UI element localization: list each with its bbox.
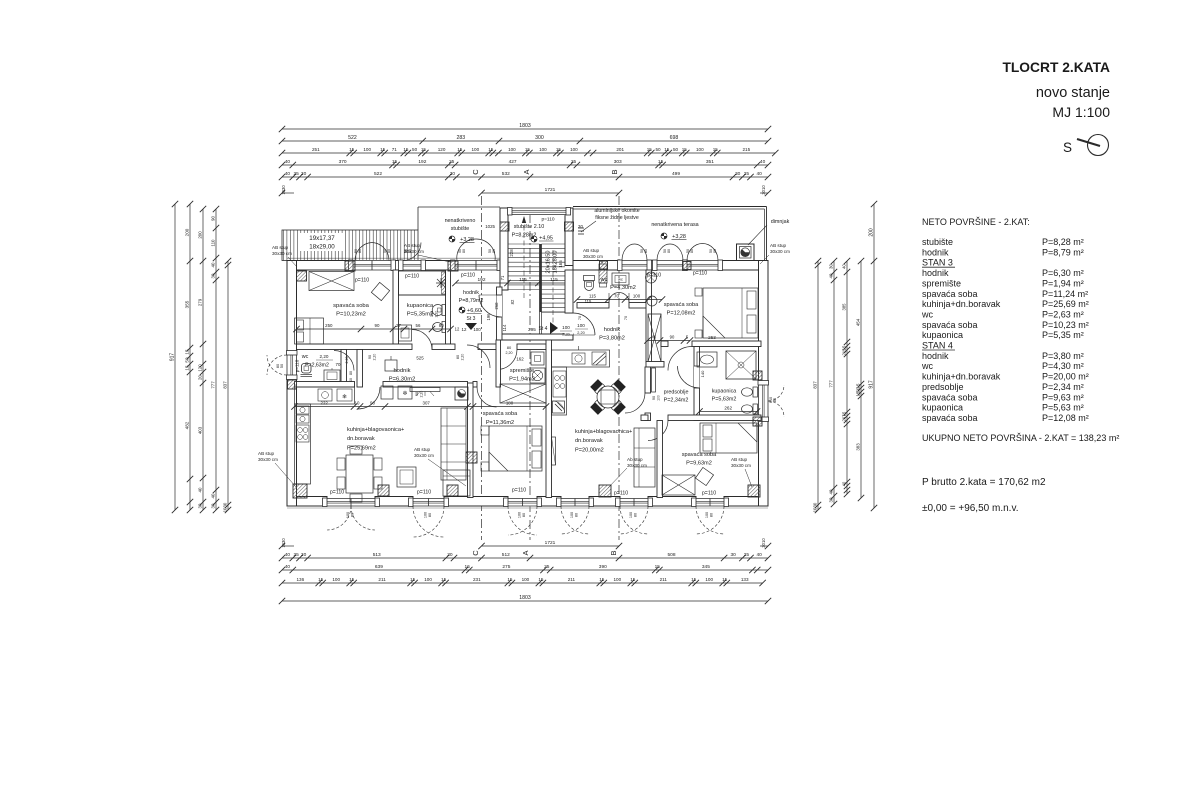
svg-text:115: 115 <box>519 277 527 283</box>
svg-text:p=110: p=110 <box>693 271 707 277</box>
svg-text:698: 698 <box>670 135 679 141</box>
svg-text:16: 16 <box>465 564 471 570</box>
svg-text:499: 499 <box>672 171 680 177</box>
svg-text:19x17,37: 19x17,37 <box>309 235 335 242</box>
svg-text:70: 70 <box>624 316 628 320</box>
svg-text:200: 200 <box>185 228 190 236</box>
svg-text:80: 80 <box>773 398 777 402</box>
svg-text:30x30 cm: 30x30 cm <box>583 254 603 259</box>
svg-text:15: 15 <box>664 147 670 152</box>
svg-text:p=110: p=110 <box>702 491 716 497</box>
svg-text:275: 275 <box>502 564 510 570</box>
svg-text:wc: wc <box>921 310 933 320</box>
svg-text:hodnik: hodnik <box>922 247 949 257</box>
svg-text:P brutto 2.kata = 170,62 m2: P brutto 2.kata = 170,62 m2 <box>922 477 1046 488</box>
svg-text:192: 192 <box>477 277 485 283</box>
svg-text:nenatkriveno: nenatkriveno <box>445 218 476 224</box>
svg-text:stubište 2.10: stubište 2.10 <box>514 224 545 230</box>
svg-text:P=9,63m2: P=9,63m2 <box>686 461 712 467</box>
svg-text:15: 15 <box>185 365 190 371</box>
svg-text:15: 15 <box>525 147 531 152</box>
svg-text:25: 25 <box>744 171 750 177</box>
svg-text:403: 403 <box>198 426 203 434</box>
svg-text:p=110: p=110 <box>614 491 628 497</box>
svg-text:115: 115 <box>585 299 592 304</box>
svg-text:522: 522 <box>348 135 357 141</box>
svg-text:70: 70 <box>336 362 341 367</box>
svg-text:283: 283 <box>456 135 465 141</box>
svg-text:80: 80 <box>428 513 432 517</box>
svg-text:dn.boravak: dn.boravak <box>347 436 375 442</box>
svg-text:512: 512 <box>502 552 510 558</box>
svg-text:15: 15 <box>713 147 719 152</box>
svg-text:kupaonica: kupaonica <box>922 403 963 413</box>
svg-text:15: 15 <box>349 577 355 582</box>
svg-text:P=1,94 m²: P=1,94 m² <box>1042 278 1084 288</box>
svg-text:p=110: p=110 <box>512 488 526 494</box>
svg-text:1030: 1030 <box>813 502 818 512</box>
svg-text:AB stup: AB stup <box>414 447 431 452</box>
svg-text:71: 71 <box>500 275 505 280</box>
svg-text:P=8,28 m²: P=8,28 m² <box>1042 237 1084 247</box>
svg-text:80: 80 <box>575 513 579 517</box>
svg-text:385: 385 <box>842 303 847 311</box>
svg-text:100: 100 <box>522 577 530 582</box>
svg-text:hodnik: hodnik <box>922 351 949 361</box>
svg-text:dn.boravak: dn.boravak <box>575 438 603 444</box>
svg-text:P=4,30m2: P=4,30m2 <box>610 285 636 291</box>
svg-text:12: 12 <box>455 327 460 332</box>
svg-text:B: B <box>610 169 619 174</box>
svg-text:100: 100 <box>473 327 481 332</box>
svg-text:P=8,79 m²: P=8,79 m² <box>1042 247 1084 257</box>
svg-text:50: 50 <box>673 147 679 152</box>
svg-text:P=20,00m2: P=20,00m2 <box>575 448 604 454</box>
svg-text:kupaonica: kupaonica <box>712 389 737 395</box>
svg-text:777: 777 <box>211 381 216 389</box>
svg-text:532: 532 <box>502 171 510 177</box>
svg-text:spremište: spremište <box>922 278 961 288</box>
svg-text:100: 100 <box>424 577 432 582</box>
svg-text:15: 15 <box>856 391 861 396</box>
svg-text:30: 30 <box>450 171 456 177</box>
svg-text:hodnik: hodnik <box>604 327 621 333</box>
svg-text:p=110: p=110 <box>330 490 344 496</box>
svg-text:kuhinja+blagovaonica+: kuhinja+blagovaonica+ <box>575 429 632 435</box>
svg-text:133: 133 <box>741 577 749 582</box>
svg-text:345: 345 <box>702 564 710 570</box>
svg-text:80: 80 <box>690 249 694 253</box>
svg-text:15: 15 <box>441 577 447 582</box>
svg-text:40: 40 <box>285 552 291 558</box>
svg-text:917: 917 <box>170 353 176 362</box>
svg-text:120: 120 <box>198 364 203 372</box>
svg-text:spremište: spremište <box>510 368 534 374</box>
svg-text:110: 110 <box>211 239 216 247</box>
svg-text:18x29,00: 18x29,00 <box>309 244 335 251</box>
svg-text:508: 508 <box>667 552 675 558</box>
svg-text:2,20: 2,20 <box>461 354 465 361</box>
svg-text:917: 917 <box>869 380 875 389</box>
svg-text:251: 251 <box>312 147 320 152</box>
svg-text:2,20: 2,20 <box>577 331 584 335</box>
svg-text:3010: 3010 <box>761 185 766 195</box>
svg-text:40: 40 <box>829 273 834 278</box>
svg-text:46: 46 <box>651 335 656 340</box>
svg-text:100: 100 <box>539 147 547 152</box>
svg-text:P=5,63 m²: P=5,63 m² <box>1042 403 1084 413</box>
svg-text:100: 100 <box>705 512 709 518</box>
svg-text:482: 482 <box>185 421 190 429</box>
svg-text:140: 140 <box>700 370 705 377</box>
svg-text:1803: 1803 <box>519 123 531 129</box>
svg-text:15: 15 <box>457 147 463 152</box>
svg-text:30: 30 <box>198 503 203 508</box>
svg-text:100: 100 <box>363 147 371 152</box>
svg-text:50: 50 <box>280 364 284 368</box>
svg-text:82: 82 <box>510 299 515 304</box>
svg-text:639: 639 <box>375 564 383 570</box>
svg-text:1721: 1721 <box>545 187 556 193</box>
svg-text:P=11,24 m²: P=11,24 m² <box>1042 289 1088 299</box>
svg-text:25: 25 <box>544 564 550 570</box>
svg-text:p=110: p=110 <box>295 359 300 372</box>
svg-text:115: 115 <box>550 277 558 283</box>
svg-text:P=3,80 m²: P=3,80 m² <box>1042 351 1084 361</box>
svg-text:C: C <box>471 550 480 556</box>
svg-text:p=110: p=110 <box>355 278 369 284</box>
svg-text:novo stanje: novo stanje <box>1036 85 1110 101</box>
svg-text:25: 25 <box>571 159 577 165</box>
svg-text:+3,28: +3,28 <box>672 234 686 240</box>
svg-text:40: 40 <box>757 552 763 558</box>
svg-text:165: 165 <box>558 260 563 268</box>
svg-text:NETO POVRŠINE - 2.KAT:: NETO POVRŠINE - 2.KAT: <box>922 217 1030 227</box>
svg-text:268: 268 <box>494 302 499 310</box>
svg-text:100: 100 <box>633 294 641 299</box>
svg-text:P=12,08m2: P=12,08m2 <box>667 311 696 317</box>
svg-text:15: 15 <box>318 577 324 582</box>
svg-text:predsoblje: predsoblje <box>922 382 964 392</box>
svg-text:kuhinja+dn.boravak: kuhinja+dn.boravak <box>922 299 1001 309</box>
svg-text:p=110: p=110 <box>541 217 554 223</box>
svg-text:200: 200 <box>869 228 875 237</box>
svg-text:spavaća soba: spavaća soba <box>922 289 978 299</box>
svg-text:30: 30 <box>211 503 216 508</box>
svg-text:P=25,69m2: P=25,69m2 <box>347 446 376 452</box>
svg-text:B: B <box>609 550 618 555</box>
svg-text:100: 100 <box>424 512 428 518</box>
svg-text:90: 90 <box>415 392 419 396</box>
svg-text:15: 15 <box>599 577 605 582</box>
svg-text:dimnjak: dimnjak <box>771 219 790 225</box>
svg-text:1030: 1030 <box>223 502 228 512</box>
svg-text:80: 80 <box>644 249 648 253</box>
svg-text:15: 15 <box>392 159 398 165</box>
svg-text:wc: wc <box>921 361 933 371</box>
svg-text:80: 80 <box>351 513 355 517</box>
svg-text:201: 201 <box>616 147 624 152</box>
svg-text:+6,60: +6,60 <box>467 308 481 314</box>
svg-text:267: 267 <box>842 414 847 422</box>
svg-text:40: 40 <box>211 493 216 498</box>
svg-text:±0,00 = +96,50 m.n.v.: ±0,00 = +96,50 m.n.v. <box>922 503 1018 514</box>
svg-text:P=4,30 m²: P=4,30 m² <box>1042 361 1084 371</box>
svg-text:15: 15 <box>403 147 409 152</box>
svg-text:spavaća soba: spavaća soba <box>333 303 370 309</box>
svg-text:❄: ❄ <box>402 390 407 397</box>
svg-text:71: 71 <box>392 147 398 152</box>
svg-text:30: 30 <box>829 264 834 269</box>
svg-text:15: 15 <box>507 577 513 582</box>
svg-text:100: 100 <box>629 512 633 518</box>
svg-text:spavaća soba: spavaća soba <box>483 411 518 417</box>
svg-text:351: 351 <box>706 159 714 165</box>
svg-text:100: 100 <box>705 577 713 582</box>
svg-text:fiksne židne ljestve: fiksne židne ljestve <box>595 215 639 221</box>
svg-text:70: 70 <box>578 316 582 320</box>
svg-text:222: 222 <box>321 401 329 406</box>
svg-text:80: 80 <box>276 364 280 368</box>
svg-text:837: 837 <box>813 381 818 389</box>
svg-text:TLOCRT 2.KATA: TLOCRT 2.KATA <box>1002 60 1110 75</box>
svg-text:200: 200 <box>198 231 203 239</box>
svg-text:25: 25 <box>294 171 300 177</box>
svg-text:295: 295 <box>528 327 536 332</box>
svg-text:100: 100 <box>570 512 574 518</box>
svg-text:nenatkrivena terasa: nenatkrivena terasa <box>651 222 698 228</box>
svg-text:231: 231 <box>473 577 481 582</box>
svg-text:P=5,35 m²: P=5,35 m² <box>1042 330 1084 340</box>
svg-text:kuhinja+blagovaonica+: kuhinja+blagovaonica+ <box>347 427 404 433</box>
svg-text:427: 427 <box>509 159 517 165</box>
svg-text:P=1,94m2: P=1,94m2 <box>509 377 535 383</box>
svg-text:15: 15 <box>349 147 355 152</box>
svg-text:St 3: St 3 <box>467 316 476 322</box>
svg-text:80: 80 <box>408 249 412 253</box>
svg-text:30: 30 <box>301 552 307 558</box>
svg-text:p=110: p=110 <box>461 273 475 279</box>
svg-text:30x30 cm: 30x30 cm <box>272 251 292 256</box>
svg-text:80: 80 <box>387 249 391 253</box>
svg-text:2,20: 2,20 <box>373 354 377 361</box>
svg-text:40: 40 <box>829 489 834 494</box>
svg-text:C: C <box>471 169 480 175</box>
svg-text:80: 80 <box>710 513 714 517</box>
svg-text:P=9,63 m²: P=9,63 m² <box>1042 392 1084 402</box>
svg-text:20: 20 <box>198 375 203 380</box>
svg-text:15: 15 <box>380 147 386 152</box>
svg-text:100: 100 <box>518 512 522 518</box>
svg-text:P=6,30 m²: P=6,30 m² <box>1042 268 1084 278</box>
svg-text:100: 100 <box>613 577 621 582</box>
svg-text:P=3,80m2: P=3,80m2 <box>599 336 625 342</box>
svg-text:15: 15 <box>655 564 661 570</box>
svg-text:wc: wc <box>600 277 608 283</box>
svg-text:30: 30 <box>829 497 834 502</box>
svg-text:MJ 1:100: MJ 1:100 <box>1052 104 1110 120</box>
svg-text:spavaća soba: spavaća soba <box>922 320 978 330</box>
svg-text:25: 25 <box>744 552 750 558</box>
svg-text:S: S <box>1063 140 1072 155</box>
svg-text:kupaonica: kupaonica <box>407 303 434 309</box>
svg-text:+4,95: +4,95 <box>539 236 553 242</box>
svg-text:2,20: 2,20 <box>345 357 349 364</box>
svg-text:UKUPNO NETO POVRŠINA - 2.KAT =: UKUPNO NETO POVRŠINA - 2.KAT = 138,23 m² <box>922 433 1119 443</box>
svg-text:spavaća soba: spavaća soba <box>922 413 978 423</box>
svg-text:50: 50 <box>412 147 418 152</box>
svg-text:525: 525 <box>416 356 424 361</box>
svg-text:15: 15 <box>556 147 562 152</box>
svg-text:Ab stup: Ab stup <box>627 457 643 462</box>
svg-text:192: 192 <box>418 159 426 165</box>
svg-text:STAN 3: STAN 3 <box>922 258 953 268</box>
svg-text:10: 10 <box>355 401 360 406</box>
svg-text:30x30 cm: 30x30 cm <box>770 249 790 254</box>
svg-text:211: 211 <box>378 577 386 582</box>
svg-text:100: 100 <box>577 323 585 328</box>
svg-text:100: 100 <box>508 147 516 152</box>
svg-text:12: 12 <box>462 327 467 332</box>
svg-text:40: 40 <box>285 171 291 177</box>
svg-text:30: 30 <box>735 171 741 177</box>
svg-text:100: 100 <box>570 147 578 152</box>
svg-text:90: 90 <box>370 401 375 406</box>
svg-text:30: 30 <box>211 273 216 278</box>
svg-text:80: 80 <box>507 345 512 350</box>
svg-text:P=12,08 m²: P=12,08 m² <box>1042 413 1089 423</box>
svg-text:30x30 cm: 30x30 cm <box>731 463 751 468</box>
svg-text:80: 80 <box>713 249 717 253</box>
svg-text:15: 15 <box>691 577 697 582</box>
svg-text:90: 90 <box>375 323 380 328</box>
svg-text:15: 15 <box>488 147 494 152</box>
svg-text:100: 100 <box>332 577 340 582</box>
svg-text:30: 30 <box>301 171 307 177</box>
svg-text:80: 80 <box>349 371 353 375</box>
svg-text:AB stup: AB stup <box>258 451 275 456</box>
svg-text:spavaća soba: spavaća soba <box>664 302 699 308</box>
svg-text:AB stup: AB stup <box>404 243 421 248</box>
svg-text:90: 90 <box>368 355 372 359</box>
svg-text:P=11,36m2: P=11,36m2 <box>486 420 514 426</box>
svg-text:279: 279 <box>198 298 203 306</box>
svg-text:370: 370 <box>339 159 347 165</box>
svg-text:80: 80 <box>462 249 466 253</box>
svg-text:1721: 1721 <box>545 540 556 546</box>
svg-text:25: 25 <box>449 159 455 165</box>
svg-text:15: 15 <box>410 577 416 582</box>
svg-text:15: 15 <box>682 147 688 152</box>
svg-text:stubište: stubište <box>451 226 470 232</box>
svg-text:215: 215 <box>842 348 847 356</box>
svg-text:p=110: p=110 <box>417 490 431 496</box>
svg-text:hodnik: hodnik <box>463 290 479 296</box>
svg-text:1030: 1030 <box>281 185 286 195</box>
svg-text:114: 114 <box>502 324 507 331</box>
svg-text:100: 100 <box>562 325 570 330</box>
svg-text:spavaća soba: spavaća soba <box>922 392 978 402</box>
svg-text:307: 307 <box>423 401 431 406</box>
svg-text:P=2,34 m²: P=2,34 m² <box>1042 382 1084 392</box>
svg-text:56: 56 <box>416 323 421 328</box>
svg-text:40: 40 <box>760 159 766 165</box>
svg-text:15: 15 <box>658 159 664 165</box>
svg-text:1025: 1025 <box>485 224 495 229</box>
svg-text:215: 215 <box>742 147 750 152</box>
svg-text:25: 25 <box>294 552 300 558</box>
svg-text:aluminijske okomite: aluminijske okomite <box>594 208 639 214</box>
svg-text:❄: ❄ <box>342 394 347 401</box>
svg-text:300: 300 <box>535 135 544 141</box>
svg-text:390: 390 <box>599 564 607 570</box>
svg-text:40: 40 <box>757 171 763 177</box>
svg-text:P=10,23 m²: P=10,23 m² <box>1042 320 1089 330</box>
svg-text:stubište: stubište <box>922 237 953 247</box>
svg-text:P=2,34m2: P=2,34m2 <box>664 398 689 404</box>
svg-text:228: 228 <box>509 249 514 257</box>
svg-text:wc: wc <box>301 354 309 360</box>
svg-text:196: 196 <box>486 313 491 321</box>
svg-text:p=110: p=110 <box>405 274 419 280</box>
svg-text:A: A <box>521 550 530 555</box>
svg-text:100: 100 <box>471 147 479 152</box>
svg-text:1803: 1803 <box>519 595 531 601</box>
svg-text:100: 100 <box>346 512 350 518</box>
svg-text:262: 262 <box>724 406 732 411</box>
svg-text:100: 100 <box>696 147 704 152</box>
svg-text:777: 777 <box>829 380 834 388</box>
svg-text:P=6,30m2: P=6,30m2 <box>389 377 416 383</box>
svg-text:3010: 3010 <box>761 538 766 548</box>
svg-text:hodnik: hodnik <box>922 268 949 278</box>
svg-text:20x16,50: 20x16,50 <box>546 250 552 273</box>
svg-text:P=2,63 m²: P=2,63 m² <box>1042 310 1084 320</box>
svg-text:AB stup: AB stup <box>770 243 787 248</box>
svg-text:kupaonica: kupaonica <box>922 330 963 340</box>
svg-text:40: 40 <box>842 481 847 486</box>
svg-text:40: 40 <box>349 378 353 382</box>
svg-text:30: 30 <box>731 552 737 558</box>
svg-text:80: 80 <box>358 249 362 253</box>
svg-text:15: 15 <box>538 577 544 582</box>
svg-text:90: 90 <box>670 335 675 340</box>
svg-text:2,20: 2,20 <box>435 311 439 318</box>
svg-text:136: 136 <box>296 577 304 582</box>
svg-text:15: 15 <box>722 577 728 582</box>
svg-text:P=20,00 m²: P=20,00 m² <box>1042 372 1089 382</box>
svg-text:40: 40 <box>211 262 216 267</box>
svg-text:St 4: St 4 <box>539 326 548 332</box>
svg-text:1030: 1030 <box>281 538 286 548</box>
svg-text:40: 40 <box>198 487 203 492</box>
svg-text:80: 80 <box>634 513 638 517</box>
svg-text:253: 253 <box>708 335 716 340</box>
svg-text:AB stup: AB stup <box>583 248 600 253</box>
svg-text:80: 80 <box>667 249 671 253</box>
svg-text:250: 250 <box>325 323 333 328</box>
svg-text:2,20: 2,20 <box>320 354 329 359</box>
svg-text:80: 80 <box>522 513 526 517</box>
svg-text:30: 30 <box>447 552 453 558</box>
svg-text:30x30 cm: 30x30 cm <box>258 457 278 462</box>
svg-text:P=5,63m2: P=5,63m2 <box>712 397 737 403</box>
svg-text:2,20: 2,20 <box>506 351 513 355</box>
svg-text:50: 50 <box>185 357 190 363</box>
svg-text:80: 80 <box>492 249 496 253</box>
svg-text:predsoblje: predsoblje <box>664 390 689 396</box>
svg-text:AB stup: AB stup <box>731 457 748 462</box>
